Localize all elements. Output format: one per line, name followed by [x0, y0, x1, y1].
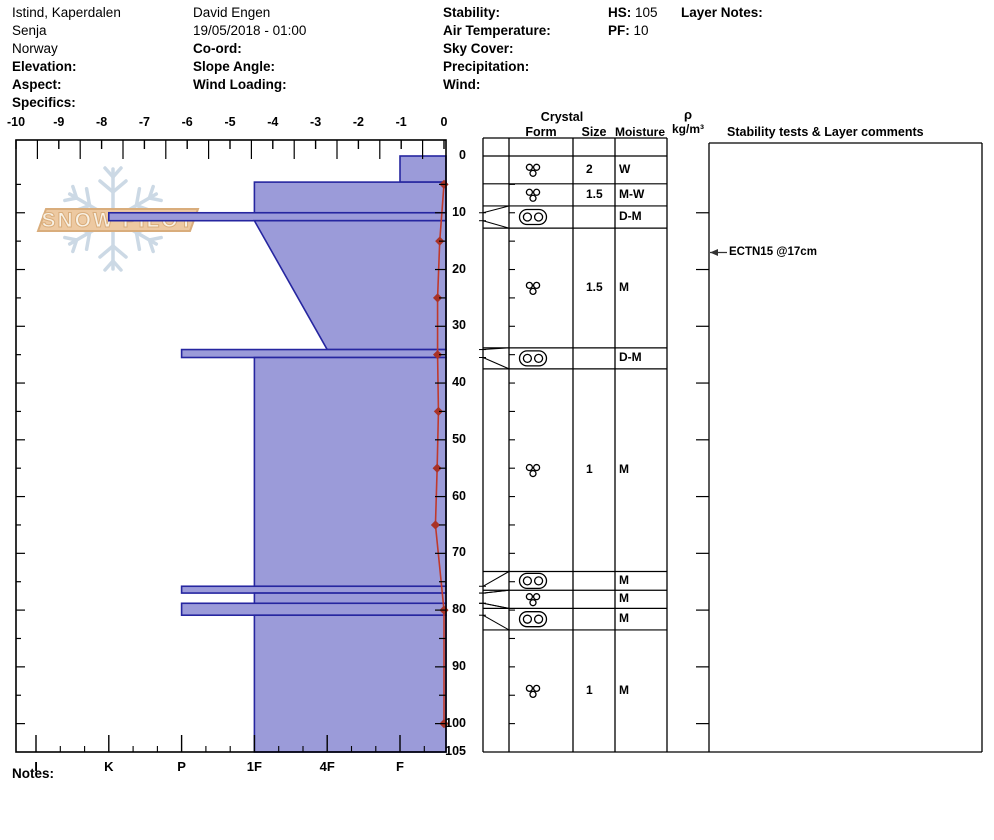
grain-circle — [534, 465, 540, 471]
layer-bar — [254, 182, 446, 213]
grain-circle — [523, 354, 531, 362]
grain-circle — [523, 615, 531, 623]
grain-circle — [523, 577, 531, 585]
grain-circle — [526, 685, 532, 691]
grain-circle — [530, 170, 536, 176]
grain-form-melt-cluster-icon — [526, 594, 539, 606]
layer-bar — [254, 358, 446, 587]
snowflake-line — [113, 181, 126, 192]
layer-bar — [254, 615, 446, 752]
layer-bar — [182, 586, 446, 593]
leader-line — [483, 206, 509, 213]
profile-chart-svg: SNOW PILOT — [0, 0, 994, 840]
snowflake-line — [100, 181, 113, 192]
layer-bar — [400, 156, 446, 182]
grain-circle — [534, 594, 540, 600]
leader-line — [483, 603, 509, 608]
layer-bar — [182, 350, 446, 358]
snowpilot-profile-page: Istind, Kaperdalen Senja Norway Elevatio… — [0, 0, 994, 840]
layer-bar-wedge — [254, 221, 446, 350]
grain-circle — [530, 195, 536, 201]
snowflake-line — [100, 246, 113, 257]
grain-circle — [526, 594, 532, 600]
annotation-arrowhead — [710, 249, 718, 256]
snowflake-line — [113, 246, 126, 257]
layer-bar — [254, 593, 446, 603]
grain-circle — [530, 691, 536, 697]
grain-circle — [526, 282, 532, 288]
grain-form-melt-cluster-icon — [526, 465, 539, 477]
grain-circle — [530, 600, 536, 606]
grain-circle — [530, 471, 536, 477]
grain-circle — [534, 282, 540, 288]
grain-form-melt-cluster-icon — [526, 685, 539, 697]
grain-form-melt-cluster-icon — [526, 282, 539, 294]
layer-bar — [182, 603, 446, 615]
grain-circle — [534, 164, 540, 170]
grain-circle — [526, 164, 532, 170]
grain-circle — [535, 354, 543, 362]
grain-circle — [535, 213, 543, 221]
leader-line — [483, 221, 509, 228]
grain-form-melt-freeze-crust-icon — [520, 573, 547, 588]
grain-circle — [534, 189, 540, 195]
grain-form-melt-freeze-crust-icon — [520, 612, 547, 627]
grain-circle — [534, 685, 540, 691]
grain-circle — [535, 577, 543, 585]
grain-circle — [526, 465, 532, 471]
leader-line — [483, 571, 509, 586]
grain-form-melt-cluster-icon — [526, 189, 539, 201]
grain-circle — [530, 288, 536, 294]
grain-circle — [523, 213, 531, 221]
leader-line — [483, 358, 509, 369]
grain-circle — [526, 189, 532, 195]
leader-line — [483, 615, 509, 630]
grain-form-melt-freeze-crust-icon — [520, 351, 547, 366]
layer-bar — [109, 213, 446, 221]
grain-circle — [535, 615, 543, 623]
grain-form-melt-freeze-crust-icon — [520, 210, 547, 225]
grain-form-melt-cluster-icon — [526, 164, 539, 176]
